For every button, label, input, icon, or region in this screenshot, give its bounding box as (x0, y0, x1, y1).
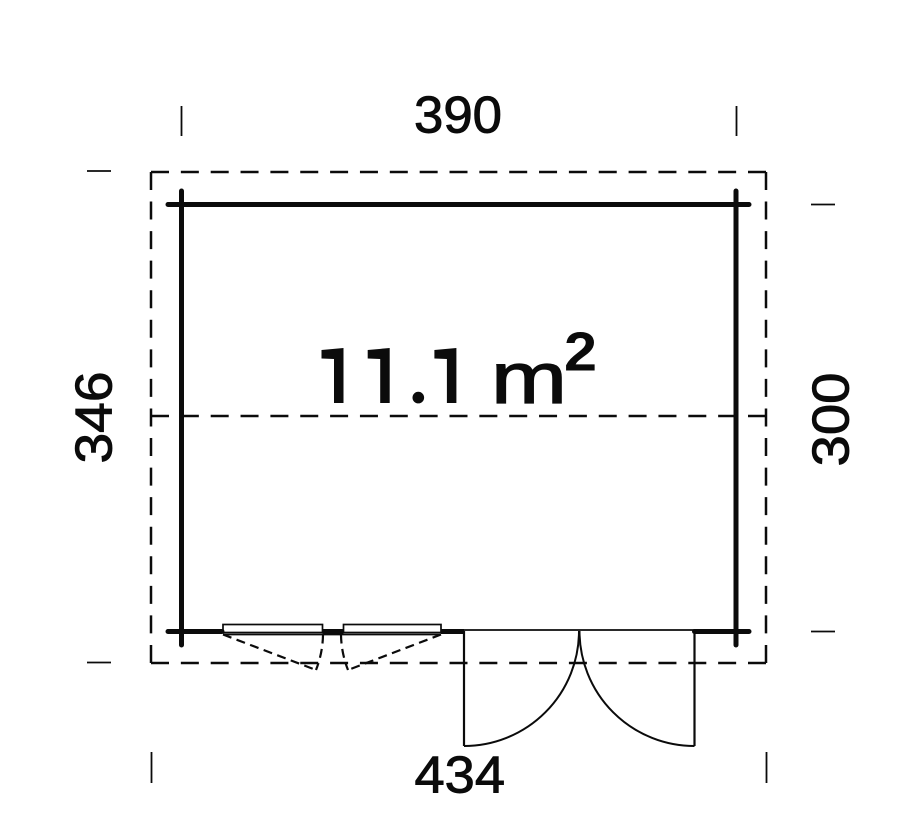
svg-text:434: 434 (415, 746, 506, 804)
svg-text:m: m (491, 339, 567, 419)
svg-text:390: 390 (414, 86, 502, 144)
svg-text:346: 346 (65, 372, 123, 464)
svg-text:2: 2 (564, 321, 597, 382)
svg-text:300: 300 (802, 373, 860, 467)
